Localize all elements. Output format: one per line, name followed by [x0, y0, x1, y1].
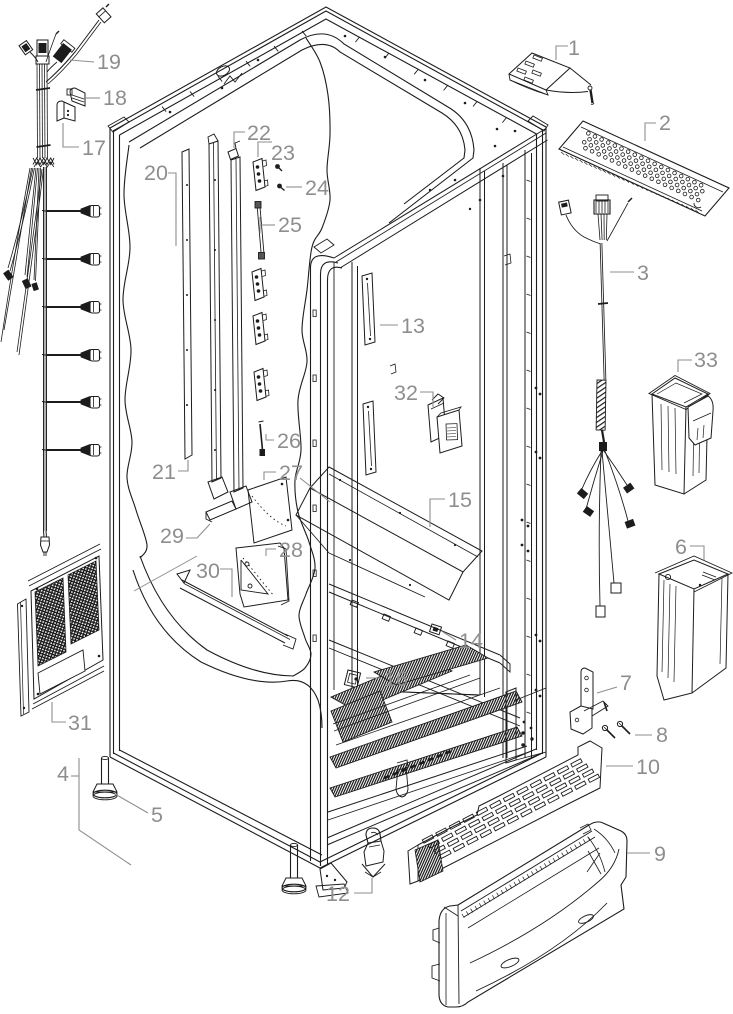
svg-text:23: 23	[271, 141, 295, 165]
svg-text:15: 15	[448, 488, 472, 512]
svg-text:31: 31	[68, 711, 92, 735]
svg-text:29: 29	[160, 524, 184, 548]
svg-text:24: 24	[305, 176, 329, 200]
svg-text:10: 10	[636, 755, 660, 779]
svg-text:22: 22	[247, 121, 271, 145]
svg-text:8: 8	[656, 723, 668, 747]
svg-text:4: 4	[57, 762, 69, 786]
svg-text:13: 13	[401, 314, 425, 338]
svg-text:6: 6	[675, 535, 687, 559]
svg-text:12: 12	[326, 882, 350, 906]
svg-text:17: 17	[82, 136, 106, 160]
svg-text:14: 14	[459, 629, 483, 653]
svg-text:5: 5	[151, 803, 163, 827]
svg-text:28: 28	[279, 538, 303, 562]
svg-text:2: 2	[659, 111, 671, 135]
svg-text:3: 3	[637, 261, 649, 285]
svg-text:9: 9	[654, 842, 666, 866]
svg-text:16: 16	[384, 667, 408, 691]
svg-text:21: 21	[152, 460, 176, 484]
svg-text:30: 30	[196, 559, 220, 583]
svg-text:1: 1	[568, 36, 580, 60]
svg-text:19: 19	[97, 50, 121, 74]
svg-text:25: 25	[278, 213, 302, 237]
svg-text:33: 33	[694, 348, 718, 372]
svg-text:7: 7	[620, 671, 632, 695]
svg-text:20: 20	[144, 161, 168, 185]
svg-text:32: 32	[394, 381, 418, 405]
svg-text:27: 27	[279, 461, 303, 485]
svg-text:18: 18	[103, 86, 127, 110]
svg-text:26: 26	[277, 429, 301, 453]
